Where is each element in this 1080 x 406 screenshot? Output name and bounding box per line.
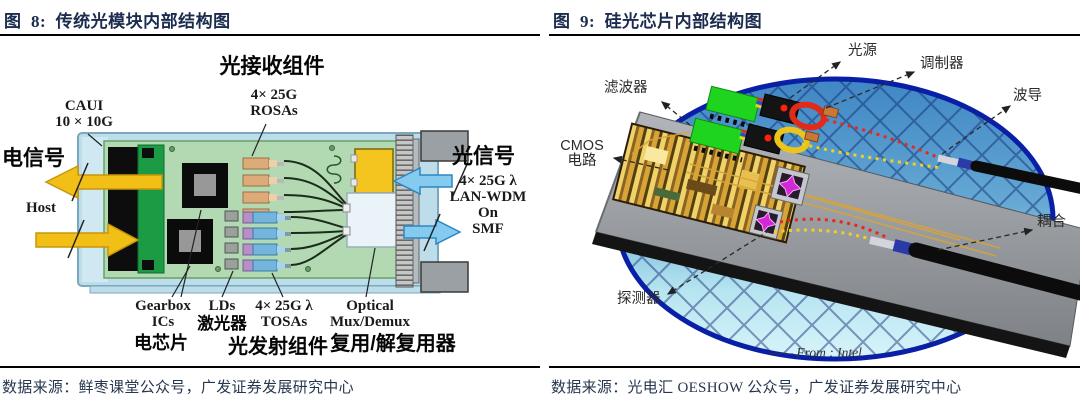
connector-column [413, 139, 419, 283]
coupling-label: 耦合 [1037, 215, 1066, 230]
caui-label: CAUI10 × 10G [55, 99, 113, 131]
edge-connector [108, 145, 164, 273]
figure9-header: 图 9: 硅光芯片内部结构图 [549, 0, 1080, 36]
electrical-chip-label: 电芯片 [134, 334, 188, 353]
tx-assembly-label: 光发射组件 [228, 337, 328, 358]
figure9-source: 数据来源：光电汇 OESHOW 公众号，广发证券发展研究中心 [551, 380, 961, 396]
receiver-block [355, 149, 393, 193]
figure9-title: 图 9: 硅光芯片内部结构图 [553, 12, 762, 31]
mux-port [343, 204, 350, 212]
case-bottom-lip [90, 286, 440, 293]
optical-mux-demux-block [347, 193, 399, 247]
modulator-label: 调制器 [920, 57, 964, 72]
figure8-source: 数据来源：鲜枣课堂公众号，广发证券发展研究中心 [2, 380, 354, 396]
figure9-footer: 数据来源：光电汇 OESHOW 公众号，广发证券发展研究中心 [549, 366, 1080, 404]
figure8-header: 图 8: 传统光模块内部结构图 [0, 0, 540, 36]
receiver-port [351, 155, 357, 162]
mux-port2 [343, 227, 350, 235]
receiver-port2 [351, 179, 357, 186]
gearbox-label: GearboxICs [135, 299, 191, 331]
light-source-label: 光源 [848, 44, 877, 59]
report-figures-section: 图 8: 传统光模块内部结构图 [0, 0, 1080, 406]
figure9-diagram: 光源 调制器 波导 滤波器 CMOS电路 探测器 耦合 —— From : In… [540, 36, 1080, 366]
detector-label: 探测器 [617, 292, 661, 307]
host-label: Host [26, 201, 56, 217]
tosas-label: 4× 25G λTOSAs [255, 299, 313, 331]
receptacle-bottom [421, 262, 468, 292]
rosas-label: 4× 25GROSAs [250, 88, 298, 120]
figure9-panel: 图 9: 硅光芯片内部结构图 [540, 0, 1080, 406]
figure8-footer: 数据来源：鲜枣课堂公众号，广发证券发展研究中心 [0, 366, 540, 404]
waveguide-label: 波导 [1013, 89, 1042, 104]
mux-cn-label: 复用/解复用器 [330, 334, 456, 355]
mux-demux-label: OpticalMux/Demux [330, 299, 410, 331]
filter-label: 滤波器 [604, 81, 648, 96]
image-credit: —— From : Intel [769, 346, 862, 360]
lds-label: LDs [209, 299, 236, 315]
rx-assembly-label: 光接收组件 [220, 56, 325, 78]
ribbed-connector [396, 135, 413, 287]
figure8-title: 图 8: 传统光模块内部结构图 [4, 12, 231, 31]
figure8-diagram: 光接收组件 4× 25GROSAs CAUI10 × 10G 电信号 Host … [0, 36, 540, 366]
cmos-label: CMOS电路 [560, 139, 604, 170]
lan-wdm-label: 4× 25G λLAN-WDM OnSMF [450, 174, 527, 238]
figure8-panel: 图 8: 传统光模块内部结构图 [0, 0, 540, 406]
laser-cn-label: 激光器 [197, 316, 247, 333]
optical-signal-label: 光信号 [452, 146, 515, 168]
electrical-signal-label: 电信号 [2, 148, 65, 170]
